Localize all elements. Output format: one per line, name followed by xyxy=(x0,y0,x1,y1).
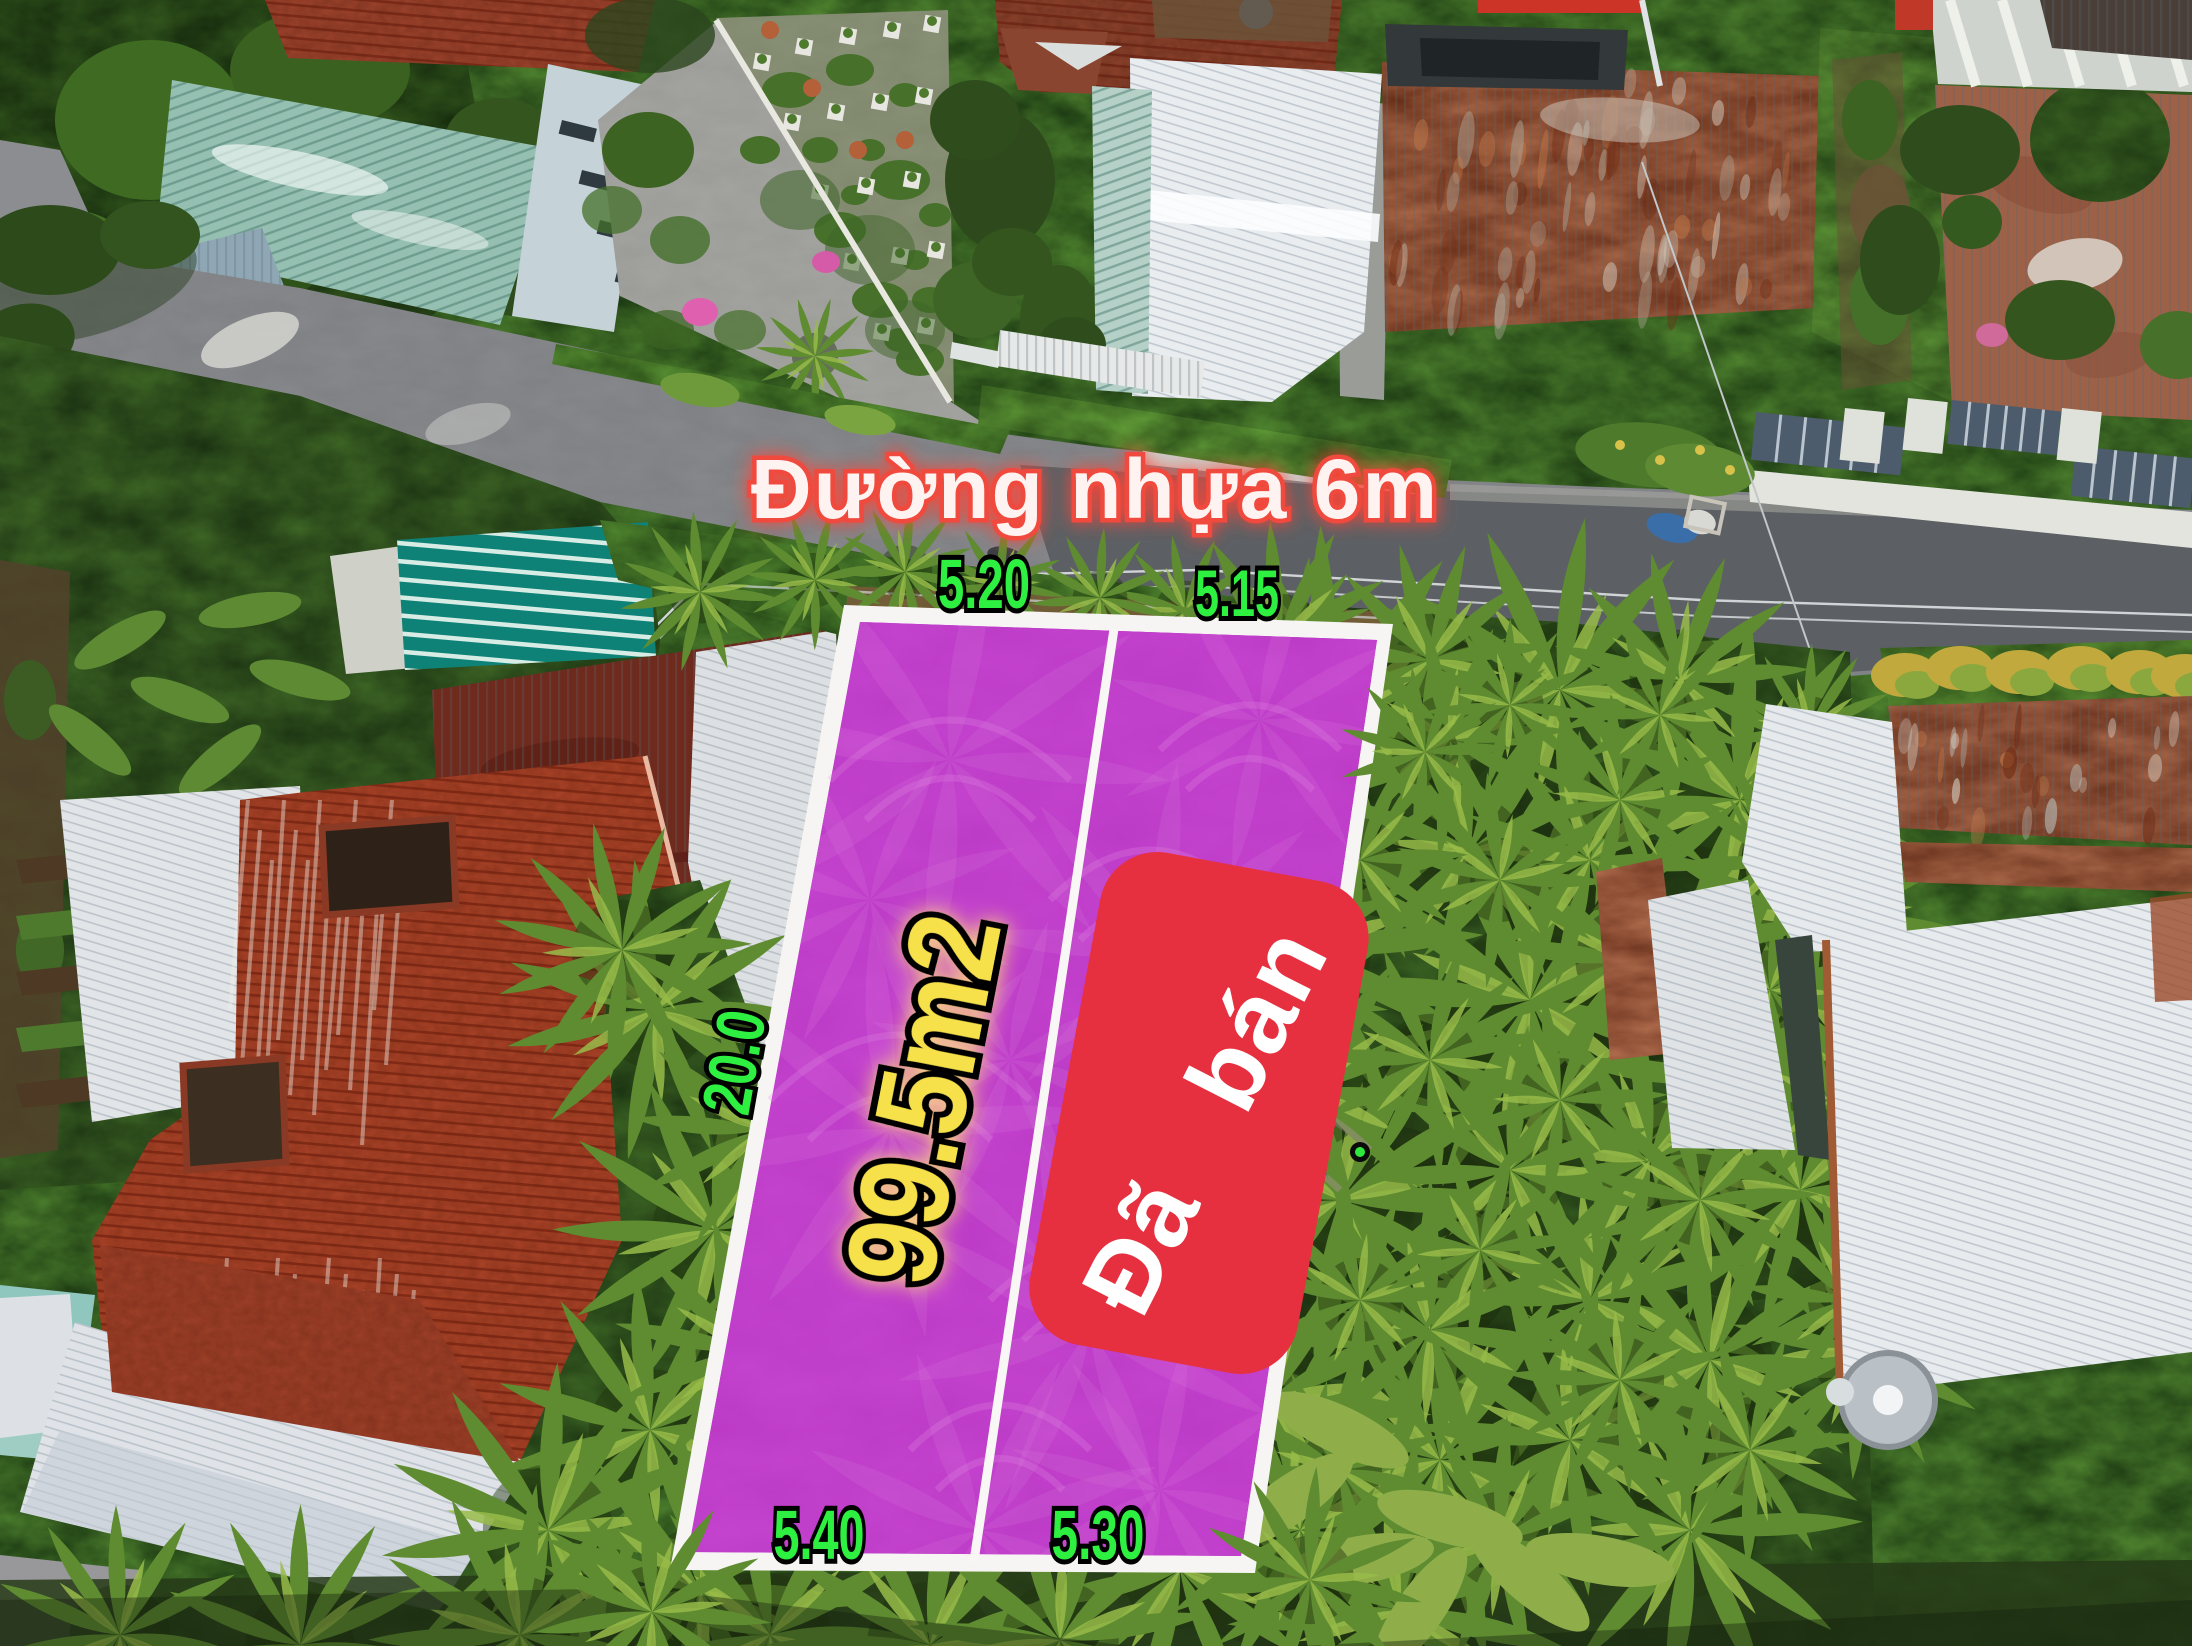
svg-text:5.30: 5.30 xyxy=(1052,1496,1145,1574)
svg-text:5.40: 5.40 xyxy=(774,1496,865,1574)
svg-text:5.15: 5.15 xyxy=(1195,556,1279,630)
svg-text:5.20: 5.20 xyxy=(938,545,1030,623)
svg-text:Đường nhựa 6m: Đường nhựa 6m xyxy=(751,442,1439,536)
